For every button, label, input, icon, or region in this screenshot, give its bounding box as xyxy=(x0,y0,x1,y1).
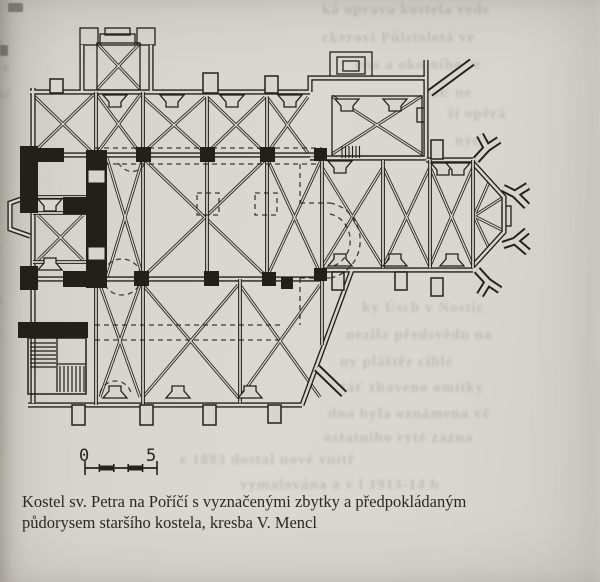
caption-line-2: půdorysem staršího kostela, kresba V. Me… xyxy=(22,512,562,533)
church-walls xyxy=(10,45,504,405)
floor-plan-figure: 0 5 xyxy=(0,0,600,482)
scale-bar: 0 5 xyxy=(79,446,157,475)
figure-caption: Kostel sv. Petra na Poříčí s vyznačenými… xyxy=(22,491,562,533)
scale-end-label: 5 xyxy=(146,446,156,466)
scanned-book-page: ká oprava kostela vedeckerovi Půlstoletá… xyxy=(0,0,600,582)
caption-line-1: Kostel sv. Petra na Poříčí s vyznačenými… xyxy=(22,491,562,512)
scale-start-label: 0 xyxy=(79,446,89,466)
